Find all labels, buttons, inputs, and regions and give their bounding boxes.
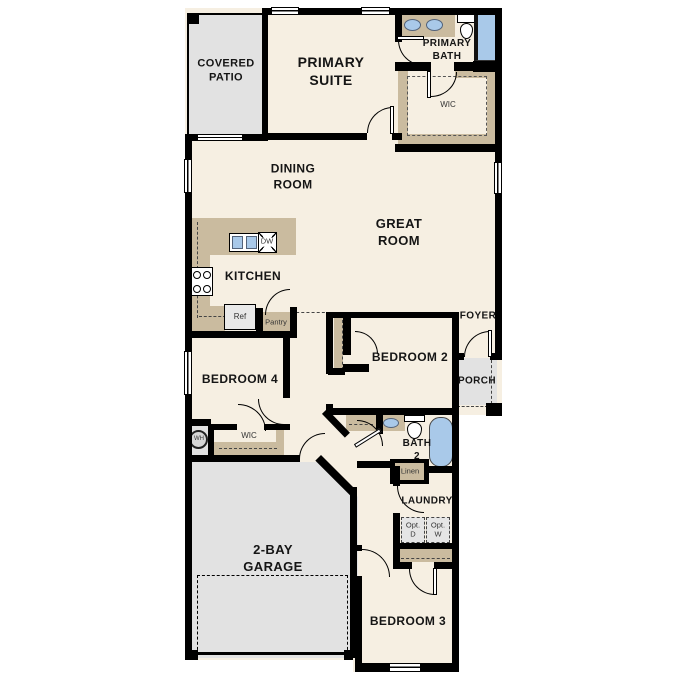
room-label-primary-suite: PRIMARY SUITE xyxy=(298,53,365,89)
wall xyxy=(434,562,458,569)
wall xyxy=(392,133,402,140)
window xyxy=(494,162,502,194)
room-label-great-room: GREAT ROOM xyxy=(376,216,423,250)
bedroom4-wic-shelf xyxy=(214,442,284,456)
room-label-bath2: BATH 2 xyxy=(403,437,432,463)
door-leaf xyxy=(397,36,424,40)
wall xyxy=(357,461,393,468)
door-leaf xyxy=(390,106,394,134)
wall xyxy=(185,455,300,462)
wall xyxy=(355,576,362,672)
wall xyxy=(393,562,412,569)
room-label-primary-bath: PRIMARY BATH xyxy=(423,37,472,63)
wall xyxy=(452,312,459,672)
door-leaf xyxy=(427,71,431,98)
label-water-heater: WH xyxy=(194,436,204,444)
window xyxy=(197,134,243,141)
wall xyxy=(326,312,333,374)
wall xyxy=(355,545,362,551)
wall xyxy=(395,144,502,152)
label-optional-washer: Opt. W xyxy=(431,521,445,538)
label-pantry: Pantry xyxy=(265,319,287,328)
wall xyxy=(393,543,458,549)
wall xyxy=(452,353,464,360)
wall xyxy=(185,134,192,658)
garage-door-dashed xyxy=(197,575,348,655)
room-label-foyer: FOYER xyxy=(460,310,496,323)
label-optional-dryer: Opt. D xyxy=(406,521,420,538)
exterior-mask xyxy=(185,660,353,674)
room-label-porch: PORCH xyxy=(458,375,496,388)
floor-plan: COVERED PATIO PRIMARY SUITE PRIMARY BATH… xyxy=(0,0,687,687)
room-label-bedroom4-wic: WIC xyxy=(241,431,257,441)
label-refrigerator: Ref xyxy=(234,312,246,322)
counter-dashed-line xyxy=(199,316,226,317)
patio-corner-post xyxy=(188,13,199,24)
wall xyxy=(473,61,497,72)
garage-door-line xyxy=(192,652,350,655)
window xyxy=(389,663,421,672)
bedroom4-wic-shelf-right xyxy=(276,430,284,456)
wall xyxy=(426,466,458,473)
wall xyxy=(486,403,502,416)
bedroom3-closet-shelf xyxy=(399,549,452,562)
wall xyxy=(332,408,458,415)
wall xyxy=(393,513,400,545)
vanity-sink xyxy=(426,19,443,31)
wall xyxy=(393,549,400,562)
room-label-dining-room: DINING ROOM xyxy=(271,161,315,192)
porch-edge-dashed xyxy=(457,406,488,407)
label-linen: Linen xyxy=(401,468,419,477)
wall xyxy=(343,318,351,355)
shower xyxy=(474,14,496,61)
window xyxy=(271,7,299,15)
stove xyxy=(190,267,213,296)
bathtub xyxy=(429,417,453,467)
wall xyxy=(264,424,290,430)
room-label-laundry: LAUNDRY xyxy=(401,495,452,508)
label-dishwasher: DW xyxy=(260,238,275,247)
bedroom4-wic-rod xyxy=(219,448,277,449)
window xyxy=(184,159,192,193)
kitchen-sink-basin xyxy=(246,236,257,249)
room-label-bedroom4: BEDROOM 4 xyxy=(202,372,278,388)
wall xyxy=(262,133,367,140)
window xyxy=(184,351,192,395)
wall xyxy=(185,419,211,426)
bath2-toilet-tank xyxy=(404,415,425,422)
bedroom3-closet-rod xyxy=(401,558,450,559)
wall xyxy=(185,331,297,338)
wall xyxy=(343,364,369,372)
bath2-sink xyxy=(383,418,399,428)
door-leaf xyxy=(433,568,437,595)
wall xyxy=(283,331,290,398)
room-label-primary-wic: WIC xyxy=(440,100,456,110)
room-label-garage: 2-BAY GARAGE xyxy=(243,542,302,576)
door-leaf xyxy=(488,330,492,357)
room-label-kitchen: KITCHEN xyxy=(225,269,281,285)
vanity-sink xyxy=(404,19,421,31)
window xyxy=(361,7,390,15)
room-label-covered-patio: COVERED PATIO xyxy=(197,57,254,86)
kitchen-sink-basin xyxy=(232,236,243,249)
room-label-bedroom3: BEDROOM 3 xyxy=(370,614,446,630)
wall xyxy=(262,8,268,141)
room-label-bedroom2: BEDROOM 2 xyxy=(372,350,448,366)
wall xyxy=(393,466,400,486)
